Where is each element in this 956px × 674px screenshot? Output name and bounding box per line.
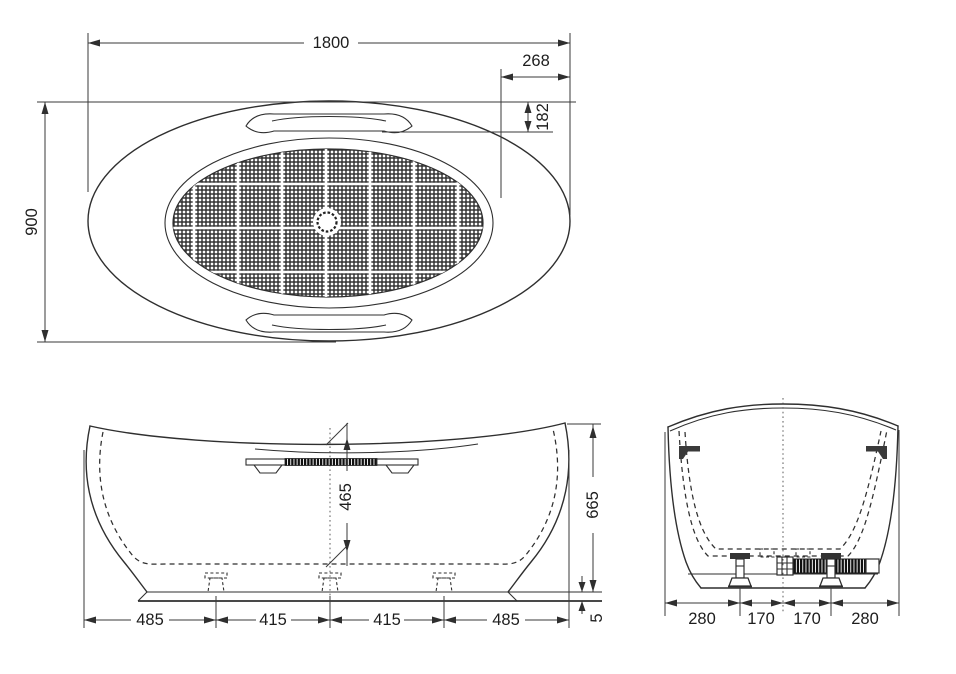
front-rim-inner-edge	[255, 444, 478, 453]
dim-grip-inset: 182	[382, 102, 553, 132]
plinth-left-bevel	[138, 592, 147, 601]
grip-bottom	[246, 313, 412, 332]
bathtub-technical-drawing: 1800 268 182 900	[0, 0, 956, 674]
plinth-right-bevel	[508, 592, 517, 601]
dim-overall-height: 665	[567, 424, 602, 592]
front-grip-rail	[246, 459, 418, 474]
dim-overall-length-label: 1800	[313, 34, 350, 52]
side-view: 280 170 170 280	[665, 398, 899, 628]
front-view: 465 665 5	[84, 423, 606, 629]
top-view: 1800 268 182 900	[23, 33, 576, 342]
front-chain-label-2: 415	[259, 611, 287, 629]
side-chain-label-3: 170	[793, 610, 821, 628]
side-foot-spacing-chain: 280 170 170 280	[665, 430, 899, 628]
front-rim-edge	[90, 423, 565, 444]
dim-overall-width-label: 900	[23, 208, 41, 236]
drain-icon	[318, 213, 337, 232]
dim-overall-height-label: 665	[584, 491, 602, 519]
side-chain-label-4: 280	[851, 610, 879, 628]
dim-interior-depth-label: 465	[337, 483, 355, 511]
adjustable-foot-left	[728, 553, 752, 587]
waste-rail-end-cap	[866, 559, 879, 573]
dim-grip-inset-label: 182	[534, 103, 552, 131]
dim-base-plate-label: 5	[588, 613, 606, 622]
dim-right-inset-label: 268	[522, 52, 550, 70]
drawing-sheet: 1800 268 182 900	[0, 0, 956, 674]
front-chain-label-3: 415	[373, 611, 401, 629]
front-chain-label-1: 485	[136, 611, 164, 629]
front-left-wall	[86, 426, 147, 592]
grip-top	[246, 114, 412, 133]
front-inner-profile-hidden	[100, 429, 558, 564]
side-rim-inner-edge	[670, 408, 896, 431]
front-foot-spacing-chain: 485 415 415 485	[84, 450, 569, 629]
front-chain-label-4: 485	[492, 611, 520, 629]
front-right-wall	[508, 423, 569, 592]
side-chain-label-1: 280	[688, 610, 716, 628]
side-grip-sections	[679, 446, 887, 459]
side-chain-label-2: 170	[747, 610, 775, 628]
